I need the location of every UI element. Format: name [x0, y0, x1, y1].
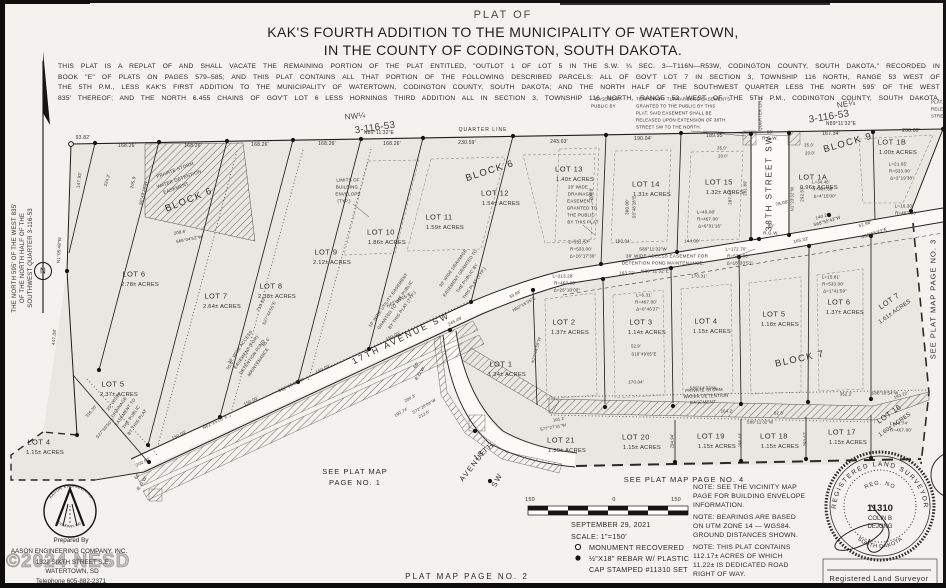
note-acreage: RIGHT OF WAY.	[693, 571, 746, 578]
surveyor-stamp: REGISTERED LAND SURVEYOR REG. NO 11310 C…	[823, 452, 937, 588]
scan-edge-top-left	[0, 0, 90, 4]
north-arrow-icon	[35, 51, 52, 313]
legend-monument-icon	[575, 544, 580, 549]
legend-rebar-1: ½"X18" REBAR W/ PLASTIC	[589, 554, 689, 563]
see-plat-page-1: SEE PLAT MAP	[322, 467, 388, 476]
scan-edge-left	[0, 0, 5, 588]
legend-scale: SCALE: 1"=150'	[571, 532, 627, 541]
page-title: KAK'S FOURTH ADDITION TO THE MUNICIPALIT…	[63, 24, 943, 40]
turnaround-hatch-4	[149, 489, 162, 501]
signature-label: Registered Land Surveyor	[829, 574, 928, 583]
stamp-regno-text: REG. NO	[864, 480, 897, 490]
scale-bar	[528, 506, 688, 515]
note-acreage: 112.17± ACRES OF WHICH	[693, 553, 783, 560]
description-line: 835' THEREOF; AND THE NORTH 6.455 CHAINS…	[58, 94, 940, 105]
see-plat-page-3: SEE PLAT MAP PAGE NO. 3	[929, 239, 938, 359]
aason-logo-icon: AASON ENGINEERING COMPANY, INC.	[44, 484, 96, 537]
legend-date: SEPTEMBER 29, 2021	[571, 520, 651, 529]
description-line: BOOK "E" OF PLATS ON PAGES 579–585; AND …	[58, 73, 940, 84]
description-line: THIS PLAT IS A REPLAT OF AND SHALL VACAT…	[58, 62, 940, 73]
see-plat-page-4: SEE PLAT MAP PAGE NO. 4	[624, 475, 744, 484]
legal-description: THIS PLAT IS A REPLAT OF AND SHALL VACAT…	[58, 62, 940, 104]
page-subtitle: IN THE COUNTY OF CODINGTON, SOUTH DAKOTA…	[63, 42, 943, 58]
plat-of-label: PLAT OF	[63, 9, 943, 21]
plat-map-page-2-label: PLAT MAP PAGE NO. 2	[405, 572, 529, 581]
stamp-name-1: COLIN B	[868, 516, 892, 522]
mls-watermark: ©2024 NESD	[6, 551, 130, 573]
description-line: THE 5TH P.M., LESS KAK'S FIRST ADDITION …	[58, 83, 940, 94]
scan-edge-bottom	[0, 583, 946, 588]
note-vicinity: INFORMATION.	[693, 502, 744, 509]
note-acreage: NOTE: THIS PLAT CONTAINS	[693, 544, 791, 551]
note-bearings: NOTE: BEARINGS ARE BASED	[693, 514, 796, 521]
scan-edge-top-smudge	[560, 0, 830, 5]
title-block: PLAT OF KAK'S FOURTH ADDITION TO THE MUN…	[63, 9, 943, 58]
note-bearings: ON UTM ZONE 14 — WGS84.	[693, 523, 791, 530]
stamp-name-2: DEJONG	[867, 524, 892, 530]
svg-text:REG. NO: REG. NO	[864, 480, 897, 490]
legend-monument: MONUMENT RECOVERED	[589, 543, 684, 552]
legend-rebar-2: CAP STAMPED #11310 SET	[589, 565, 688, 574]
note-vicinity: PAGE FOR BUILDING ENVELOPE	[693, 493, 805, 500]
monument-recovered-marker	[69, 142, 74, 147]
legend-rebar-icon	[575, 555, 580, 560]
prepared-by-label: Prepared By	[53, 537, 88, 544]
note-bearings: GROUND DISTANCES SHOWN.	[693, 532, 798, 539]
note-vicinity: NOTE: SEE THE VICINITY MAP	[693, 484, 797, 491]
turnaround-hatch-3	[469, 415, 485, 431]
note-acreage: 11.22± IS DEDICATED ROAD	[693, 562, 789, 569]
plat-document-page: REGISTERED LAND SURVEYOR REG. NO 11310 C…	[0, 0, 946, 588]
road-38th-st	[752, 134, 788, 238]
stamp-number: 11310	[867, 503, 893, 514]
see-plat-page-1: PAGE NO. 1	[329, 478, 381, 487]
